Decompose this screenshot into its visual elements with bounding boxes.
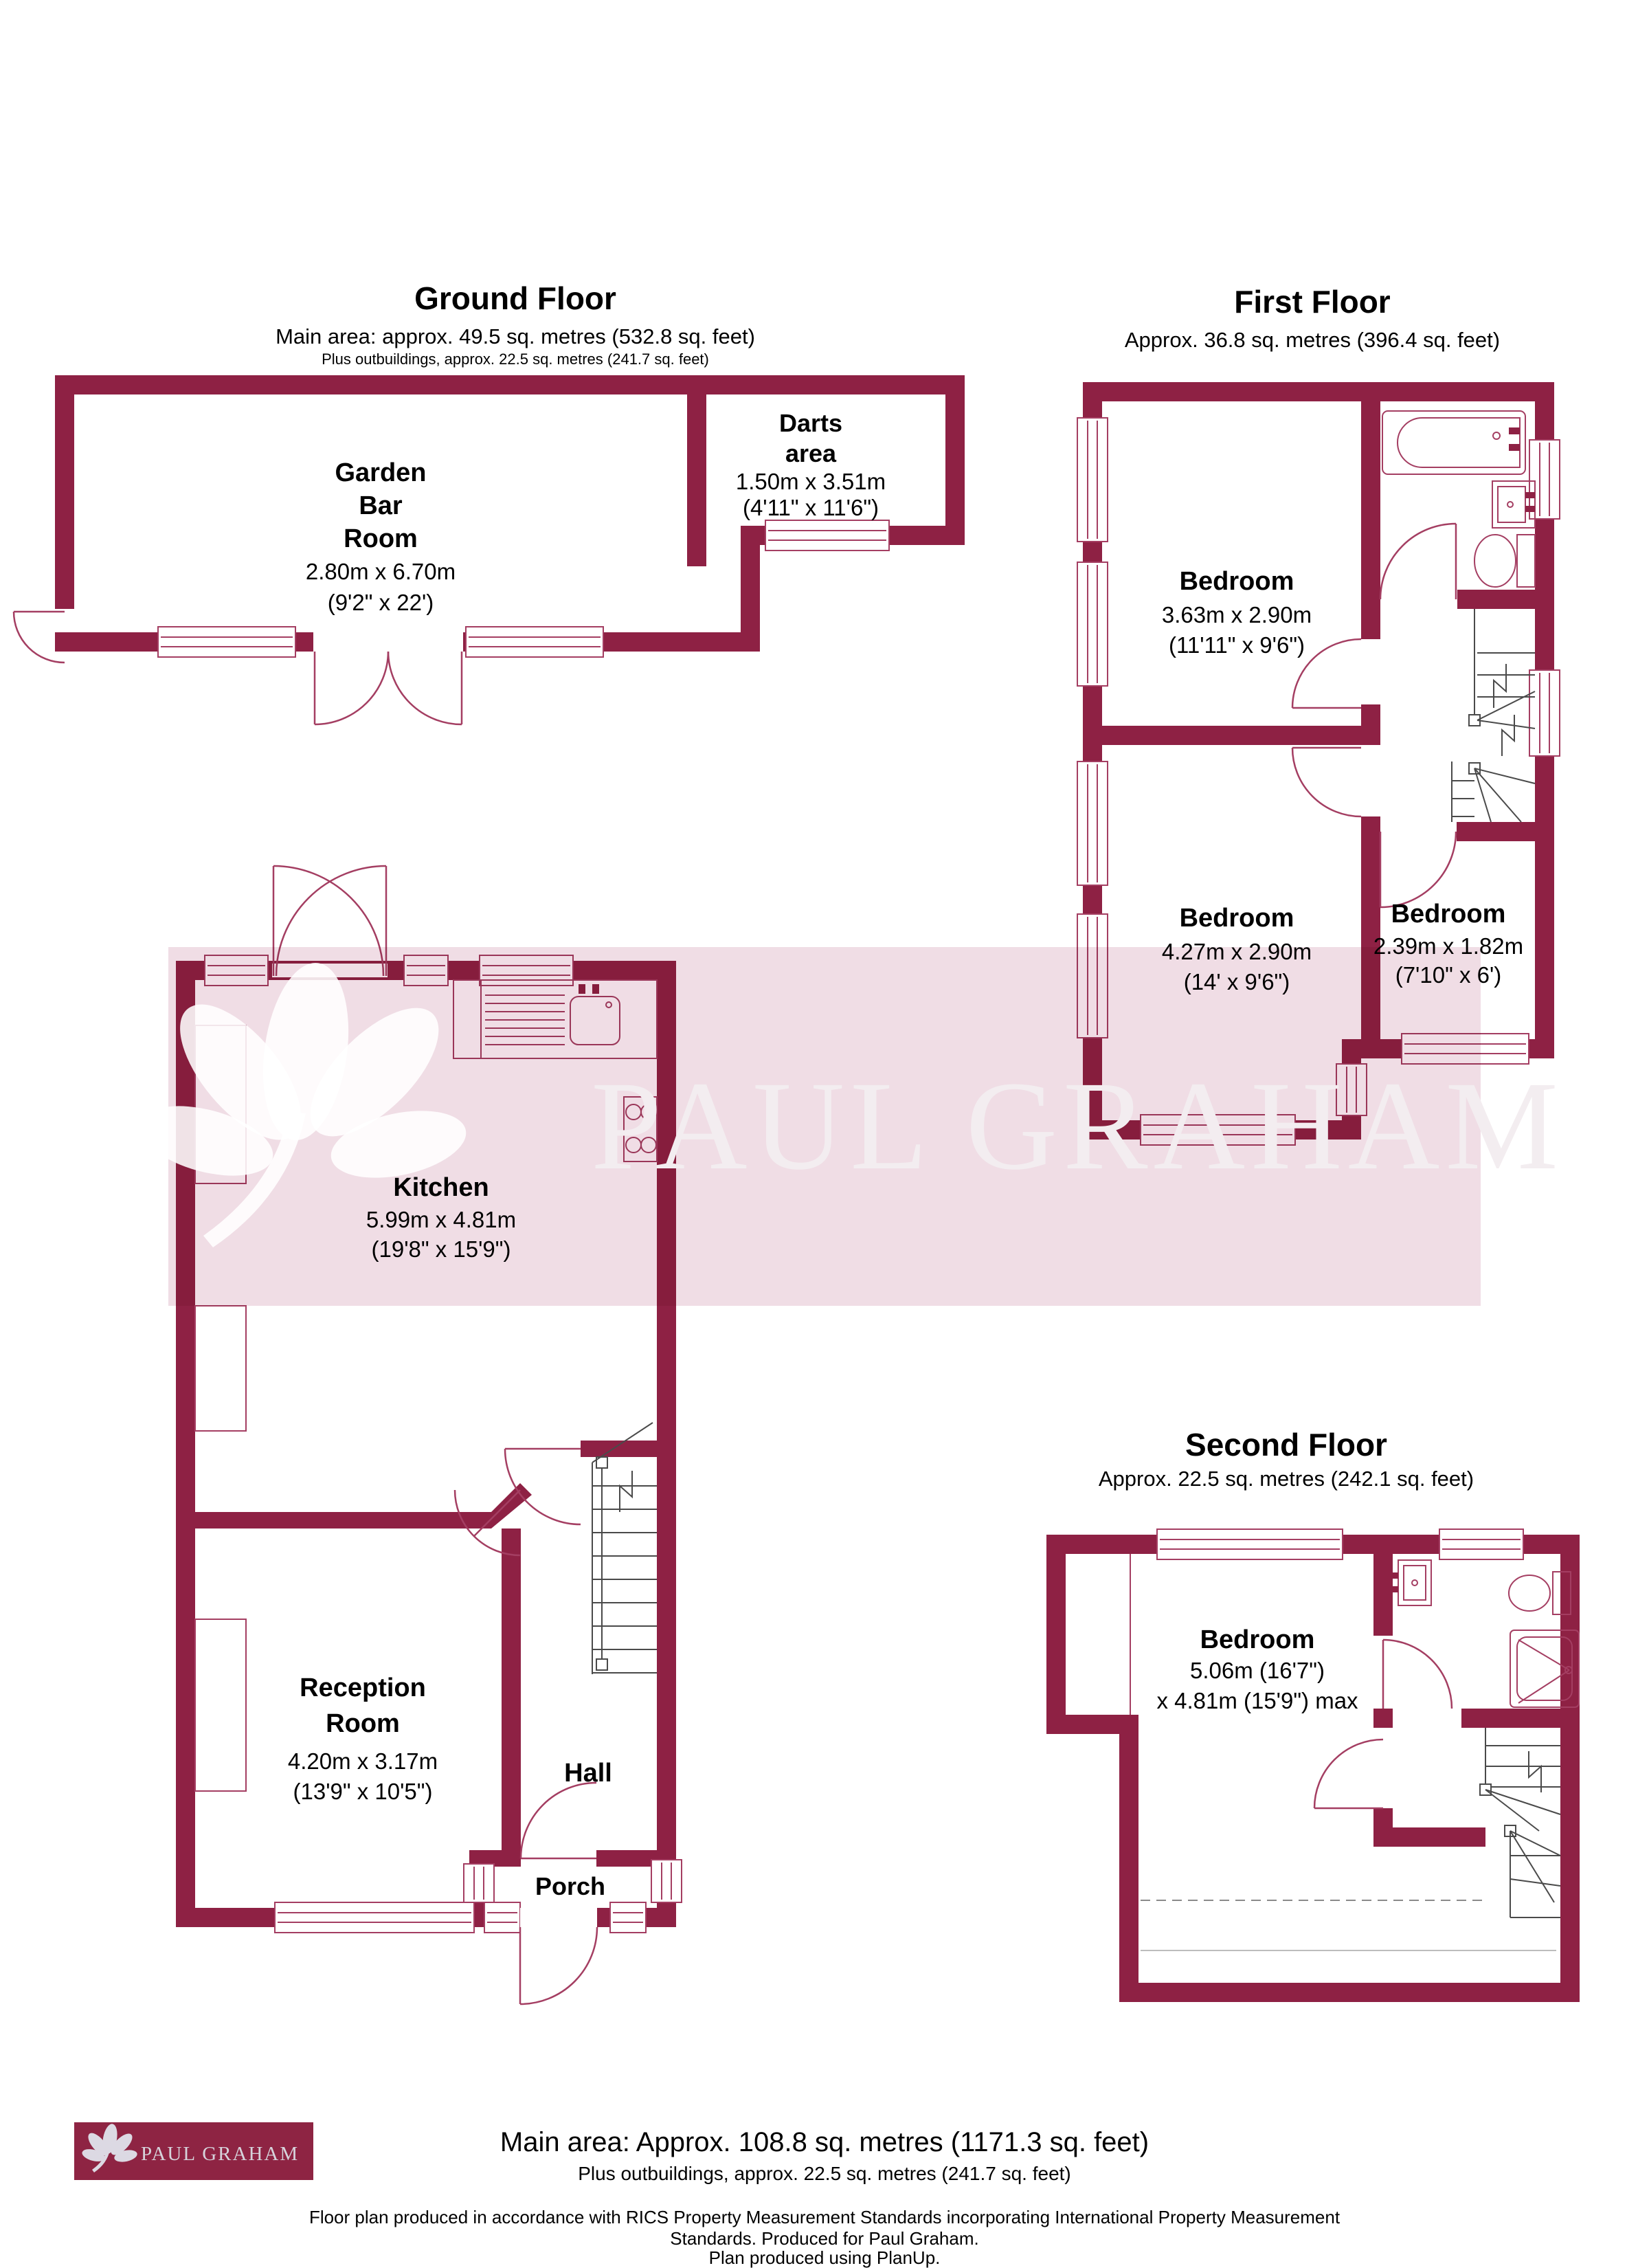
footer-outbuildings: Plus outbuildings, approx. 22.5 sq. metr… bbox=[578, 2163, 1071, 2184]
window bbox=[1529, 670, 1560, 756]
first-floor-heading: First Floor Approx. 36.8 sq. metres (396… bbox=[1125, 284, 1500, 352]
second-floor-heading: Second Floor Approx. 22.5 sq. metres (24… bbox=[1099, 1427, 1474, 1491]
watermark-text: PAUL GRAHAM bbox=[591, 1056, 1564, 1197]
ground-floor-subtitle2: Plus outbuildings, approx. 22.5 sq. metr… bbox=[322, 351, 709, 368]
staircase bbox=[592, 1423, 657, 1674]
footer-disclaimer-2: Standards. Produced for Paul Graham. bbox=[670, 2228, 978, 2249]
window bbox=[651, 1860, 682, 1902]
room-dims: 1.50m x 3.51m bbox=[736, 469, 886, 494]
first-floor-title: First Floor bbox=[1234, 284, 1391, 320]
sink-icon bbox=[1390, 1560, 1431, 1605]
door bbox=[1380, 524, 1456, 599]
sink-icon bbox=[1492, 481, 1535, 528]
room-name: area bbox=[785, 439, 837, 467]
floor-plan-canvas: Ground Floor Main area: approx. 49.5 sq.… bbox=[0, 0, 1649, 2268]
window bbox=[484, 1902, 520, 1933]
room-name: Bedroom bbox=[1200, 1625, 1315, 1654]
front-door bbox=[520, 1908, 597, 2004]
room-dims-imperial: (4'11" x 11'6") bbox=[743, 495, 879, 520]
darts-area-label: Darts area 1.50m x 3.51m (4'11" x 11'6") bbox=[736, 409, 886, 520]
room-name: Bedroom bbox=[1180, 567, 1294, 596]
window bbox=[1439, 1529, 1523, 1559]
kitchen-alcove bbox=[195, 1306, 246, 1431]
reception-room-label: Reception Room 4.20m x 3.17m (13'9" x 10… bbox=[288, 1674, 438, 1804]
door bbox=[1314, 1739, 1383, 1808]
door bbox=[505, 1449, 581, 1524]
window bbox=[1077, 761, 1108, 885]
room-dims-imperial: (13'9" x 10'5") bbox=[293, 1779, 433, 1804]
room-name: Bedroom bbox=[1391, 900, 1506, 929]
door bbox=[1292, 748, 1361, 816]
second-floor-bedroom-label: Bedroom 5.06m (16'7") x 4.81m (15'9") ma… bbox=[1156, 1625, 1358, 1713]
ground-floor-subtitle: Main area: approx. 49.5 sq. metres (532.… bbox=[276, 324, 755, 348]
room-dims-imperial: (11'11" x 9'6") bbox=[1169, 632, 1305, 658]
room-dims-imperial: (9'2" x 22') bbox=[328, 590, 434, 615]
room-dims: 3.63m x 2.90m bbox=[1162, 602, 1312, 627]
door bbox=[521, 1783, 596, 1858]
window bbox=[1077, 562, 1108, 686]
reception-alcove bbox=[195, 1619, 246, 1791]
second-floor-plan: Bedroom 5.06m (16'7") x 4.81m (15'9") ma… bbox=[1046, 1529, 1580, 2002]
french-doors bbox=[313, 630, 463, 724]
ground-floor-heading: Ground Floor Main area: approx. 49.5 sq.… bbox=[276, 280, 755, 368]
window bbox=[610, 1902, 646, 1933]
room-name: Reception bbox=[300, 1674, 426, 1702]
second-floor-subtitle: Approx. 22.5 sq. metres (242.1 sq. feet) bbox=[1099, 1467, 1474, 1491]
footer-main-area: Main area: Approx. 108.8 sq. metres (117… bbox=[500, 2127, 1149, 2157]
footer: PAUL GRAHAM Main area: Approx. 108.8 sq.… bbox=[74, 2122, 1340, 2268]
window bbox=[1157, 1529, 1343, 1559]
room-name: Garden bbox=[335, 458, 426, 487]
window bbox=[158, 627, 295, 657]
garden-bar-room-label: Garden Bar Room 2.80m x 6.70m (9'2" x 22… bbox=[306, 458, 456, 615]
toilet-icon bbox=[1474, 535, 1535, 587]
hall-label: Hall bbox=[564, 1759, 612, 1788]
window bbox=[275, 1902, 474, 1933]
room-dims-max: x 4.81m (15'9") max bbox=[1156, 1688, 1358, 1713]
room-name: Room bbox=[326, 1709, 400, 1738]
room-dims: 5.06m (16'7") bbox=[1190, 1658, 1325, 1683]
bath-icon bbox=[1382, 411, 1525, 474]
footer-disclaimer-1: Floor plan produced in accordance with R… bbox=[309, 2207, 1340, 2227]
porch-label: Porch bbox=[535, 1872, 605, 1900]
room-dims: 4.20m x 3.17m bbox=[288, 1748, 438, 1774]
outbuilding-plan: Garden Bar Room 2.80m x 6.70m (9'2" x 22… bbox=[14, 375, 965, 724]
window bbox=[765, 520, 889, 551]
ground-floor-title: Ground Floor bbox=[414, 280, 616, 316]
window bbox=[466, 627, 603, 657]
room-dims: 2.80m x 6.70m bbox=[306, 559, 456, 584]
window bbox=[1077, 418, 1108, 542]
window bbox=[464, 1864, 494, 1902]
room-name: Room bbox=[344, 524, 418, 553]
logo-text: PAUL GRAHAM bbox=[141, 2143, 299, 2165]
room-name: Darts bbox=[779, 409, 842, 437]
room-name: Bedroom bbox=[1180, 904, 1294, 933]
room-name: Bar bbox=[359, 491, 403, 520]
bedroom1-label: Bedroom 3.63m x 2.90m (11'11" x 9'6") bbox=[1162, 567, 1312, 658]
footer-produced-with: Plan produced using PlanUp. bbox=[709, 2247, 941, 2268]
door bbox=[1383, 1640, 1452, 1709]
door bbox=[1380, 832, 1456, 907]
second-floor-walls bbox=[1046, 1535, 1580, 2002]
staircase bbox=[1480, 1728, 1560, 1917]
staircase bbox=[1452, 609, 1535, 822]
first-floor-subtitle: Approx. 36.8 sq. metres (396.4 sq. feet) bbox=[1125, 328, 1500, 352]
second-floor-title: Second Floor bbox=[1185, 1427, 1387, 1463]
